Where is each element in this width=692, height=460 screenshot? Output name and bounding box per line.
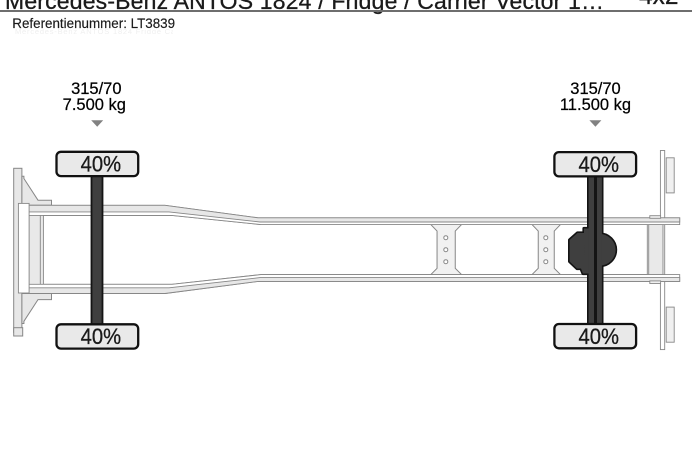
svg-text:40%: 40% [578,324,619,349]
svg-text:40%: 40% [81,152,122,177]
svg-text:40%: 40% [578,152,619,177]
svg-text:7.500 kg: 7.500 kg [63,96,126,114]
svg-text:40%: 40% [81,324,122,349]
svg-text:11.500 kg: 11.500 kg [560,96,631,114]
